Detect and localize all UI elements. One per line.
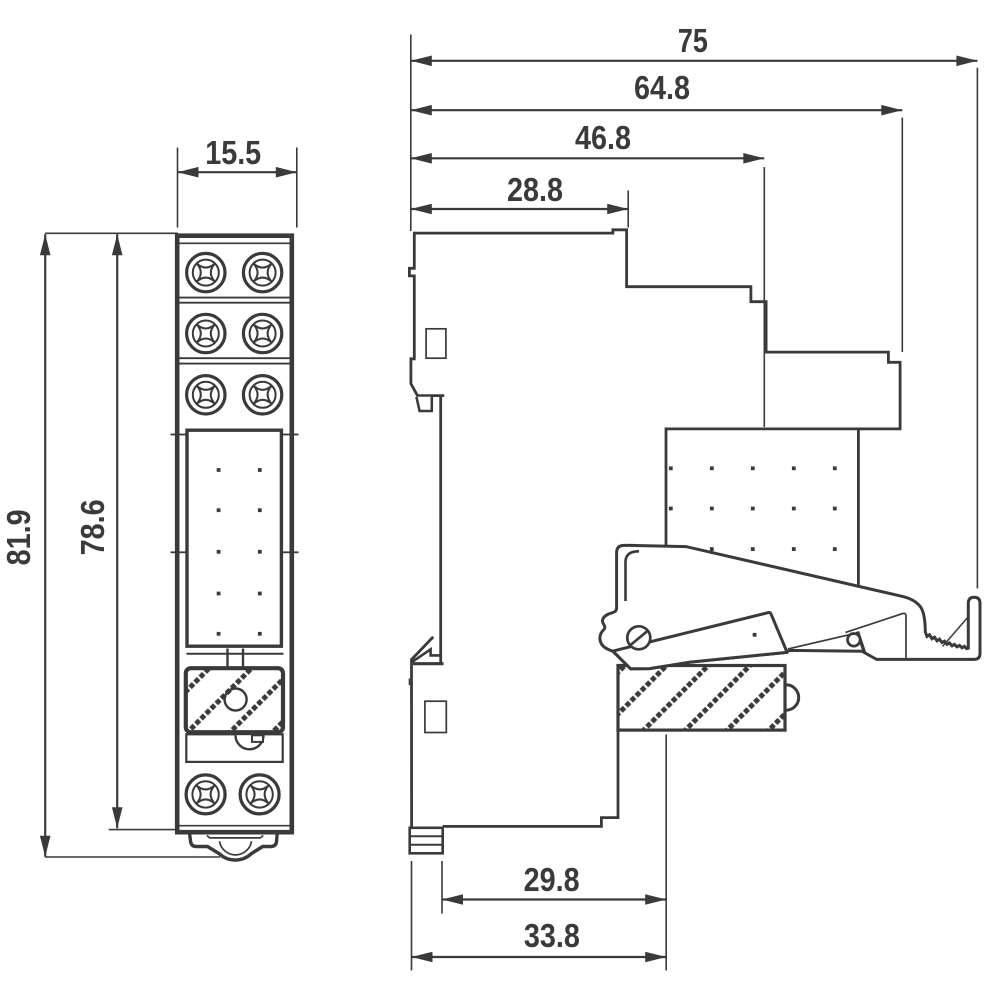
svg-text:28.8: 28.8	[507, 171, 563, 208]
svg-text:15.5: 15.5	[205, 134, 261, 171]
svg-text:78.6: 78.6	[74, 499, 111, 555]
svg-text:33.8: 33.8	[524, 917, 580, 954]
svg-text:64.8: 64.8	[634, 69, 690, 106]
svg-text:75: 75	[678, 22, 708, 59]
svg-text:81.9: 81.9	[0, 509, 37, 565]
svg-text:29.8: 29.8	[524, 861, 580, 898]
svg-text:46.8: 46.8	[575, 119, 631, 156]
